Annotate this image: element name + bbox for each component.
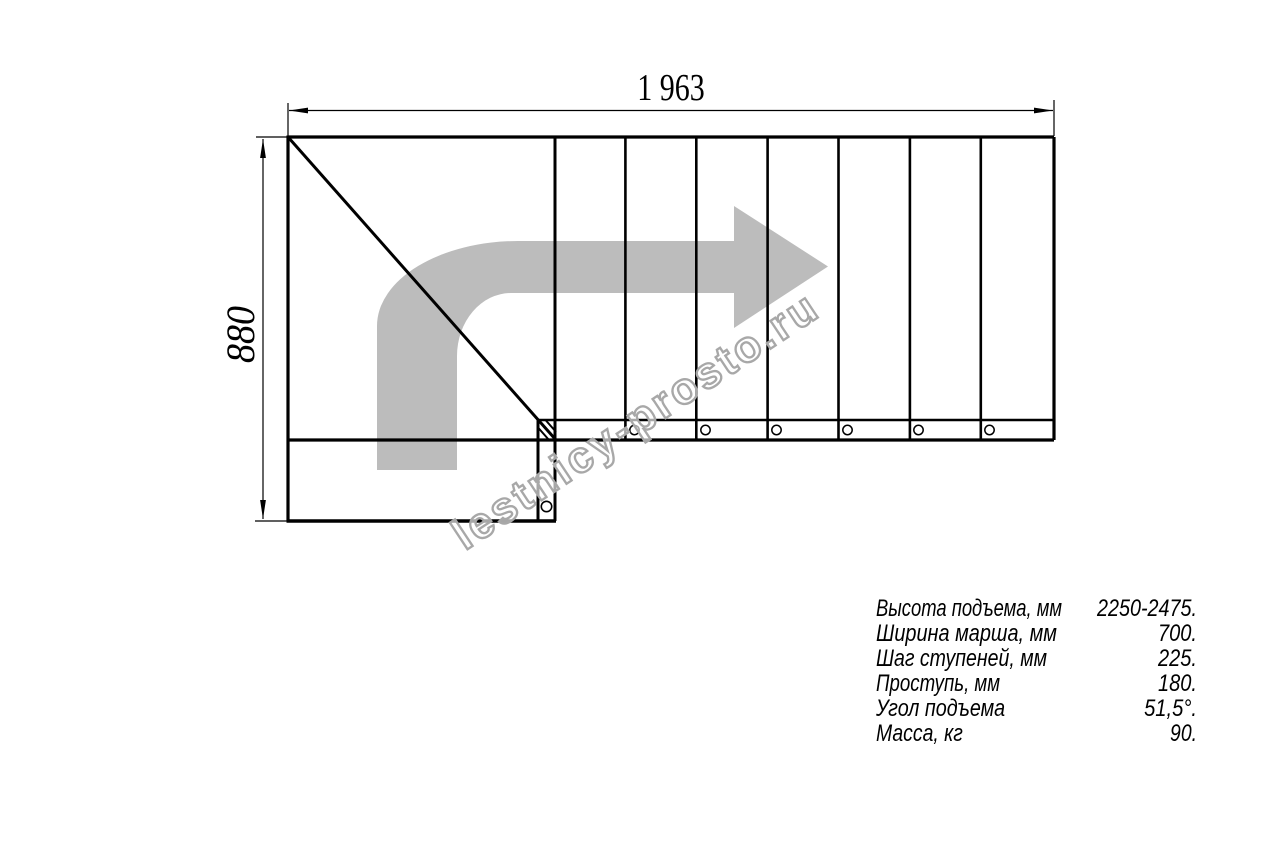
svg-text:180.: 180.: [1158, 669, 1197, 696]
svg-text:1 963: 1 963: [637, 67, 705, 109]
svg-text:225.: 225.: [1157, 644, 1197, 671]
svg-text:Масса, кг: Масса, кг: [876, 719, 963, 746]
svg-text:51,5°.: 51,5°.: [1144, 694, 1197, 721]
svg-text:Шаг ступеней, мм: Шаг ступеней, мм: [876, 644, 1047, 671]
svg-text:2250-2475.: 2250-2475.: [1096, 594, 1197, 621]
svg-text:Высота подъема, мм: Высота подъема, мм: [876, 595, 1062, 622]
svg-text:Проступь, мм: Проступь, мм: [876, 670, 1000, 697]
svg-text:880: 880: [219, 306, 263, 363]
svg-text:90.: 90.: [1170, 719, 1197, 747]
svg-text:Угол подъема: Угол подъема: [875, 694, 1005, 721]
svg-text:700.: 700.: [1158, 619, 1197, 646]
svg-text:Ширина марша, мм: Ширина марша, мм: [876, 619, 1057, 646]
